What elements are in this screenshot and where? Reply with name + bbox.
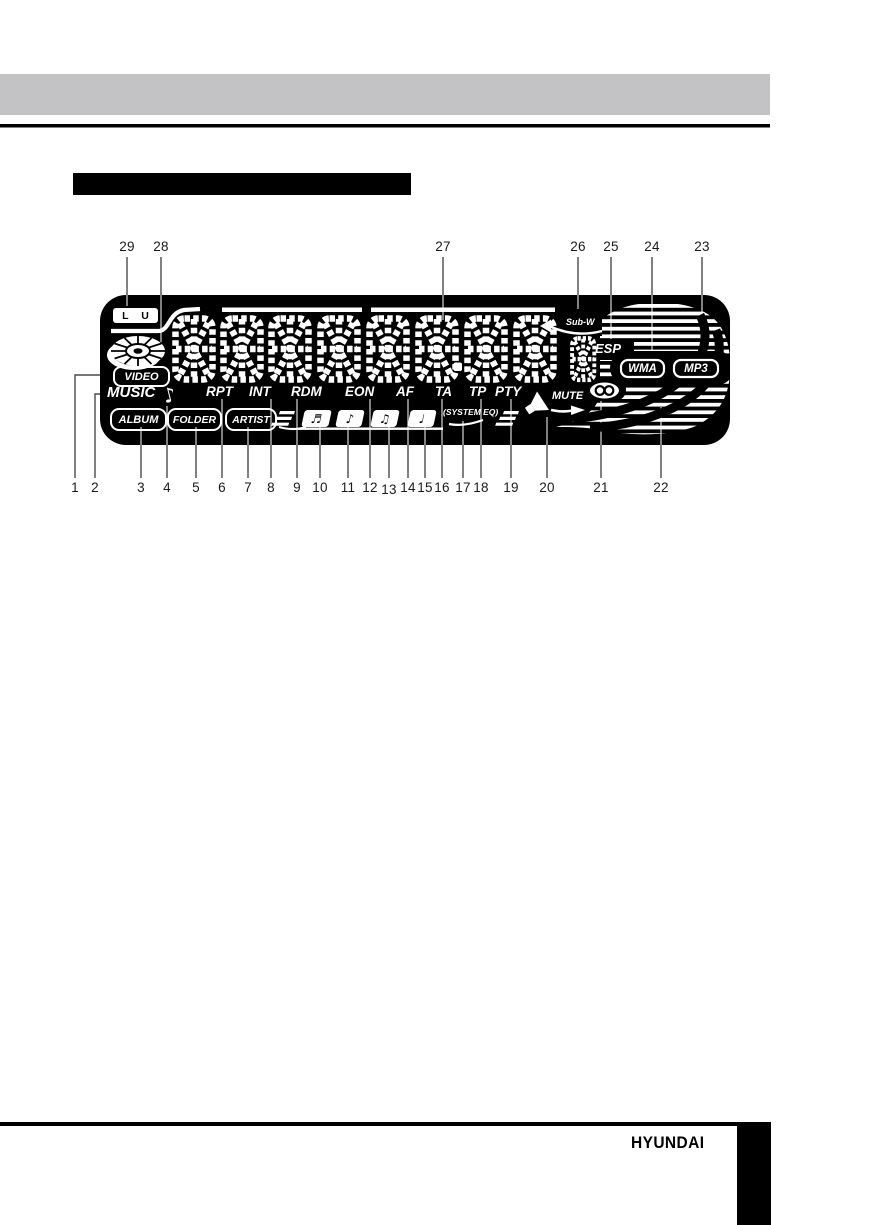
stereo-icon bbox=[590, 383, 619, 399]
rdm-indicator: RDM bbox=[291, 384, 322, 399]
callout-10: 10 bbox=[307, 480, 333, 495]
callout-6: 6 bbox=[209, 480, 235, 495]
eon-indicator: EON bbox=[345, 384, 374, 399]
callout-5: 5 bbox=[183, 480, 209, 495]
esp-indicator: ESP bbox=[595, 341, 621, 356]
callout-3: 3 bbox=[128, 480, 154, 495]
callout-19: 19 bbox=[498, 480, 524, 495]
callout-27: 27 bbox=[430, 239, 456, 254]
artist-badge: ARTIST bbox=[225, 408, 277, 431]
diagram-graphics bbox=[0, 0, 873, 1225]
af-indicator: AF bbox=[396, 384, 414, 399]
album-badge: ALBUM bbox=[110, 408, 167, 431]
sub-w-label: Sub-W bbox=[566, 317, 595, 327]
callout-21: 21 bbox=[588, 480, 614, 495]
matrix-dot bbox=[454, 363, 463, 372]
callout-22: 22 bbox=[648, 480, 674, 495]
folder-badge: FOLDER bbox=[167, 408, 222, 431]
lu-indicator: L U bbox=[113, 308, 158, 323]
callout-26: 26 bbox=[565, 239, 591, 254]
chip-note-icon-2: ♪ bbox=[335, 410, 365, 427]
int-indicator: INT bbox=[249, 384, 271, 399]
mute-label: MUTE bbox=[552, 390, 583, 402]
chip-note-icon-1: ♬ bbox=[301, 410, 332, 427]
tp-indicator: TP bbox=[469, 384, 486, 399]
callout-4: 4 bbox=[154, 480, 180, 495]
callout-2: 2 bbox=[82, 480, 108, 495]
callout-20: 20 bbox=[534, 480, 560, 495]
callout-25: 25 bbox=[598, 239, 624, 254]
side-tab bbox=[737, 1122, 771, 1225]
callout-29: 29 bbox=[114, 239, 140, 254]
callout-24: 24 bbox=[639, 239, 665, 254]
chip-note-icon-4: ♩ bbox=[407, 410, 437, 427]
wma-badge: WMA bbox=[621, 360, 664, 377]
chip-note-icon-3: ♫ bbox=[370, 410, 400, 427]
callout-23: 23 bbox=[689, 239, 715, 254]
mp3-badge: MP3 bbox=[674, 360, 718, 377]
manual-page: 29 28 27 26 25 24 23 1 2 3 4 5 6 7 8 9 1… bbox=[0, 0, 873, 1225]
header-bar bbox=[0, 74, 770, 128]
system-eq-label: (SYSTEM EQ) bbox=[443, 407, 498, 417]
section-title-bar bbox=[73, 173, 411, 195]
chips-underline bbox=[298, 428, 443, 430]
callout-28: 28 bbox=[148, 239, 174, 254]
pty-indicator: PTY bbox=[495, 384, 521, 399]
ta-indicator: TA bbox=[435, 384, 452, 399]
callout-18: 18 bbox=[468, 480, 494, 495]
music-label: MUSIC bbox=[107, 384, 155, 401]
brand-logo: HYUNDAI bbox=[631, 1135, 704, 1154]
callout-8: 8 bbox=[258, 480, 284, 495]
rpt-indicator: RPT bbox=[206, 384, 233, 399]
